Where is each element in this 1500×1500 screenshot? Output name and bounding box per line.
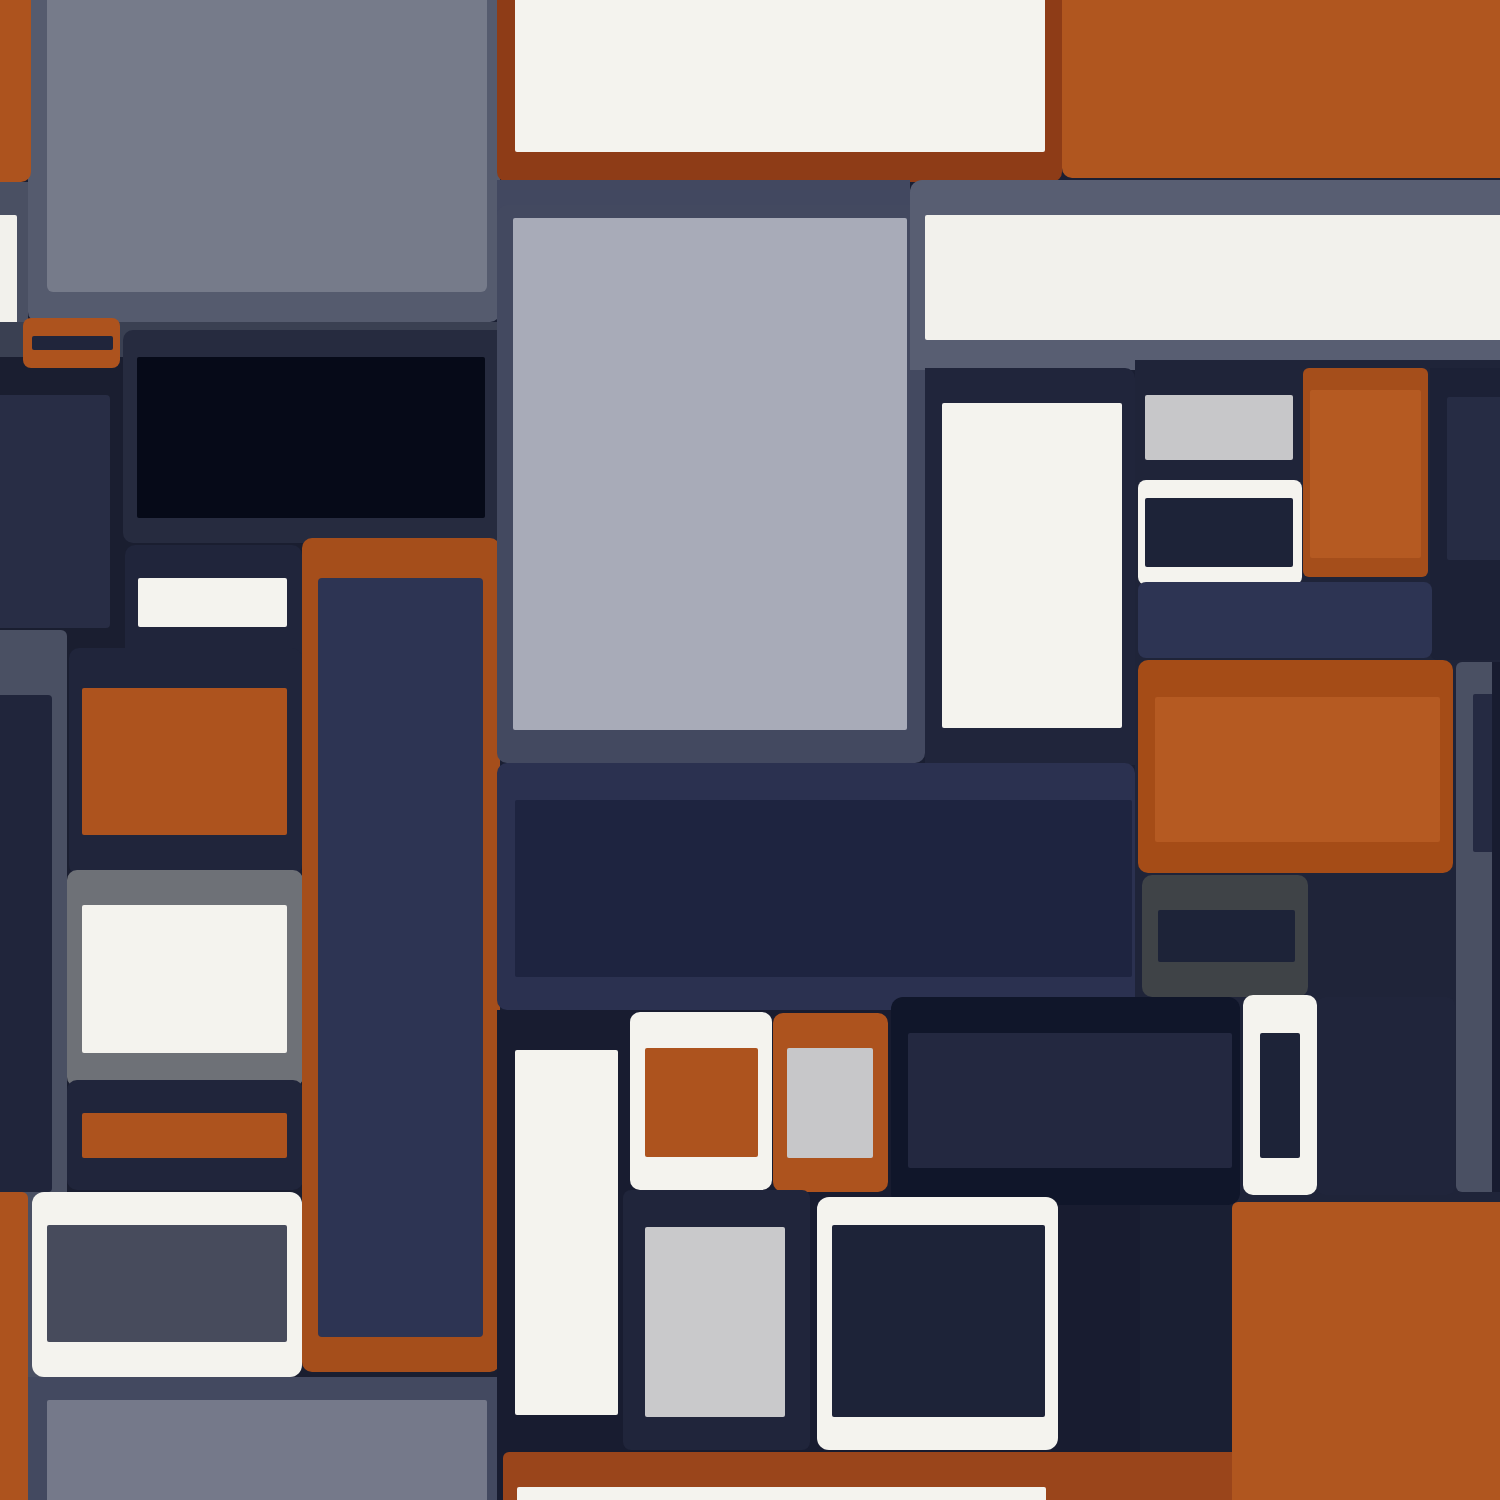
right-corner-inner: [1447, 397, 1500, 560]
right-navy-band: [1138, 582, 1432, 658]
tall-navy-rect: [318, 578, 483, 1337]
black-rect: [137, 357, 485, 518]
big-dark-panel-inner: [908, 1033, 1232, 1168]
tl-orange-strip: [0, 0, 31, 182]
darkgray-panel-inner: [1158, 910, 1295, 962]
center-white-rect: [942, 403, 1122, 728]
gray-square: [787, 1048, 873, 1158]
bottom-lightgray-rect: [645, 1227, 785, 1417]
bottom-right-navy-panel: [1317, 997, 1455, 1195]
left-mini-navy-rect: [0, 395, 110, 628]
silver-square: [513, 218, 907, 730]
white-slot-inner: [1260, 1033, 1300, 1158]
bottom-right-orange-field: [1232, 1202, 1500, 1500]
left-orange-edge: [0, 1192, 28, 1500]
orange-tab-stripe: [32, 336, 113, 350]
right-gray-rect: [1145, 395, 1293, 460]
gray-card-white-rect: [82, 905, 287, 1053]
right-white-frame-inner: [1145, 498, 1293, 567]
orange-stripe-rect: [82, 1113, 287, 1158]
bottom-slate-inner: [47, 1225, 287, 1342]
top-right-orange-rect: [1062, 0, 1500, 178]
right-slate-bar-inner: [1473, 694, 1492, 852]
abstract-pattern-canvas: [0, 0, 1500, 1500]
left-navy-column: [0, 695, 52, 1192]
top-right-white-band: [925, 215, 1500, 340]
right-orange-panel-inner: [1155, 697, 1440, 842]
center-bottom-inner: [515, 800, 1132, 977]
far-right-strip: [1492, 662, 1500, 1192]
top-white-rect: [515, 0, 1045, 152]
orange-card-rect: [82, 688, 287, 835]
bottom-white-frame-inner: [832, 1225, 1045, 1417]
bottom-left-gray-rect: [47, 1400, 487, 1500]
right-orange-tall-inner: [1310, 390, 1421, 558]
bottom-offwhite-band: [517, 1487, 1046, 1500]
orange-square: [645, 1048, 758, 1157]
tl-gray-rect: [47, 0, 487, 292]
bottom-offwhite-tall: [515, 1050, 618, 1415]
white-card-rect: [138, 578, 287, 627]
